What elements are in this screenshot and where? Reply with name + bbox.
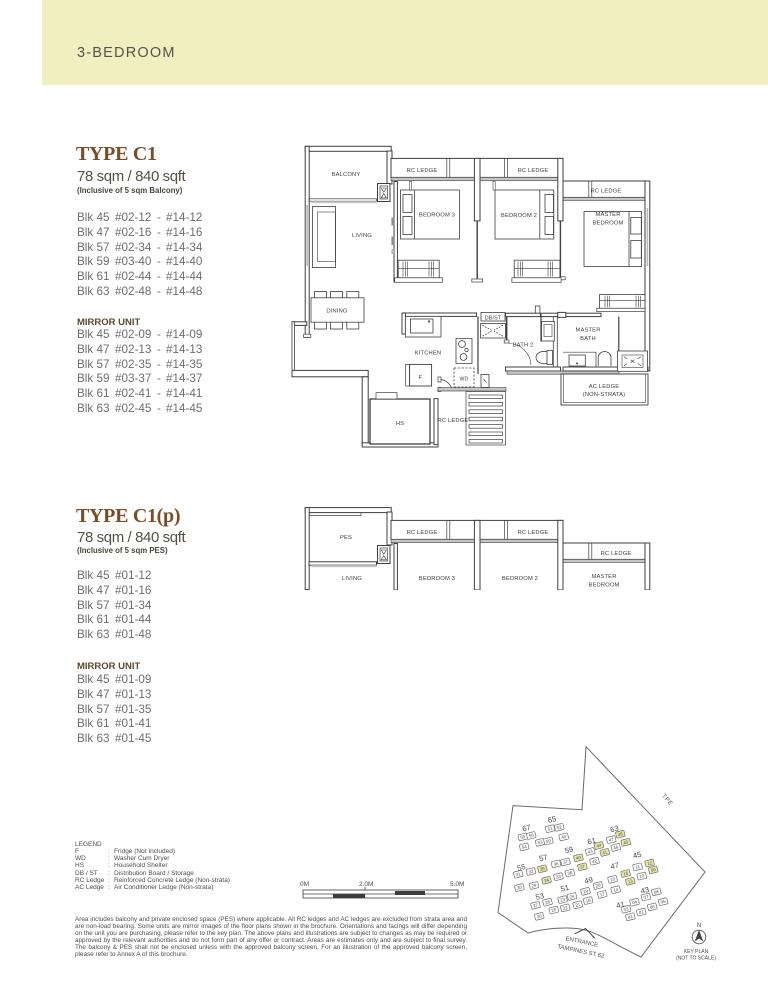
svg-text:51: 51	[560, 883, 570, 894]
svg-text:BEDROOM 2: BEDROOM 2	[501, 213, 537, 219]
svg-text:RC LEDGE: RC LEDGE	[518, 168, 549, 174]
svg-text:BEDROOM 2: BEDROOM 2	[502, 576, 538, 582]
svg-text:57: 57	[538, 853, 548, 864]
svg-text:HS: HS	[396, 421, 404, 427]
svg-text:(NOT TO SCALE): (NOT TO SCALE)	[676, 956, 716, 962]
svg-text:MASTER: MASTER	[591, 574, 616, 580]
svg-text:KITCHEN: KITCHEN	[415, 350, 442, 356]
svg-text:BEDROOM: BEDROOM	[592, 221, 623, 227]
svg-text:45: 45	[632, 850, 642, 861]
svg-text:2.0M: 2.0M	[359, 881, 373, 888]
svg-text:47: 47	[610, 860, 620, 871]
svg-text:BEDROOM 3: BEDROOM 3	[419, 576, 455, 582]
svg-text:49: 49	[583, 875, 593, 886]
svg-text:DINING: DINING	[326, 309, 348, 315]
svg-text:N: N	[697, 923, 701, 929]
svg-text:F: F	[419, 375, 423, 381]
svg-text:65: 65	[547, 814, 557, 825]
svg-text:BATH 2: BATH 2	[513, 343, 534, 349]
svg-text:RC LEDGE: RC LEDGE	[407, 168, 438, 174]
svg-text:AC LEDGE: AC LEDGE	[589, 384, 620, 390]
svg-text:55: 55	[516, 862, 526, 873]
svg-text:WD: WD	[460, 377, 469, 383]
svg-text:RC LEDGE: RC LEDGE	[591, 189, 622, 195]
svg-text:RC LEDGE: RC LEDGE	[407, 530, 438, 536]
svg-text:BATH: BATH	[580, 336, 596, 342]
svg-text:LIVING: LIVING	[352, 233, 372, 239]
svg-text:KEY PLAN: KEY PLAN	[684, 949, 709, 955]
svg-text:RC LEDGE: RC LEDGE	[438, 418, 469, 424]
svg-text:BEDROOM: BEDROOM	[588, 583, 619, 589]
svg-text:RC LEDGE: RC LEDGE	[601, 551, 632, 557]
svg-text:59: 59	[564, 845, 574, 856]
svg-text:67: 67	[521, 823, 531, 834]
svg-text:MASTER: MASTER	[575, 328, 600, 334]
svg-text:5.0M: 5.0M	[450, 881, 464, 888]
svg-text:TAMPINES ST 62: TAMPINES ST 62	[557, 944, 606, 960]
svg-text:BALCONY: BALCONY	[332, 172, 361, 178]
svg-text:PES: PES	[340, 535, 352, 541]
svg-text:DB/ST: DB/ST	[485, 315, 502, 321]
svg-text:0M: 0M	[300, 881, 309, 888]
svg-text:LIVING: LIVING	[342, 576, 362, 582]
svg-text:MASTER: MASTER	[595, 212, 620, 218]
svg-text:(NON-STRATA): (NON-STRATA)	[583, 392, 625, 398]
svg-text:BEDROOM 3: BEDROOM 3	[419, 213, 455, 219]
svg-text:RC LEDGE: RC LEDGE	[518, 530, 549, 536]
svg-text:TPE: TPE	[660, 793, 674, 808]
